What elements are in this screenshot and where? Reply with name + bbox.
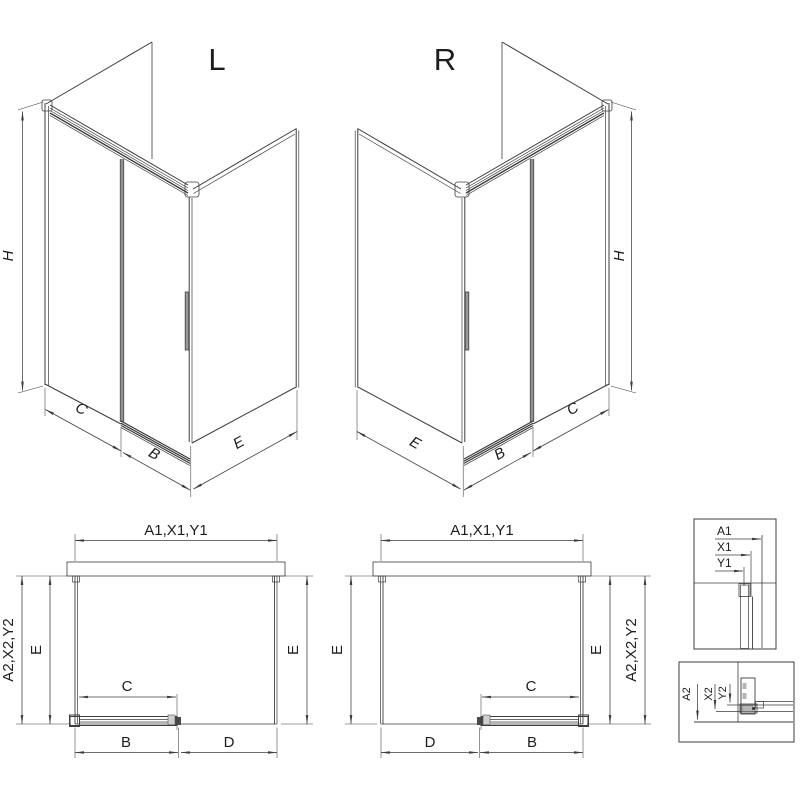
dim-label-b-plan: B — [121, 734, 131, 751]
detail-label-y1: Y1 — [717, 556, 732, 570]
wall-hatch — [67, 562, 285, 576]
variant-label-r: R — [434, 42, 456, 77]
iso-view-right: R H E B C — [355, 42, 636, 497]
door-end-profile — [477, 717, 483, 725]
plan-view-left: A1,X1,Y1 A2,X2,Y2 E E C B D — [0, 522, 313, 758]
dim-label-d-plan: D — [425, 734, 436, 751]
detail-floor-profile: A2 X2 Y2 — [679, 662, 794, 742]
roller-pin — [752, 707, 755, 710]
dim-label-b-left: B — [146, 444, 163, 464]
detail-label-x1: X1 — [717, 540, 732, 554]
dim-label-e-left-side: E — [28, 645, 45, 655]
detail-label-a1: A1 — [717, 524, 732, 538]
dim-label-e-left: E — [230, 433, 248, 453]
dim-label-b-plan: B — [527, 734, 537, 751]
dim-label-d-plan: D — [224, 734, 235, 751]
dim-label-c-plan: C — [526, 678, 537, 695]
drawing-canvas: L H C B E R H E B C A1,X1,Y1 — [0, 0, 800, 800]
dim-label-h-left: H — [0, 250, 17, 261]
floor-guide-section — [740, 678, 764, 714]
detail-label-y2: Y2 — [717, 686, 729, 699]
dim-label-h-right: H — [611, 250, 628, 261]
door-end-profile — [175, 717, 181, 725]
plan-view-right: A1,X1,Y1 E E A2,X2,Y2 C D B — [329, 522, 651, 758]
dim-label-a1-left: A1,X1,Y1 — [144, 522, 207, 539]
detail-label-x2: X2 — [703, 687, 715, 700]
technical-drawing-sheet: L H C B E R H E B C A1,X1,Y1 — [0, 0, 800, 800]
dim-label-a1-right: A1,X1,Y1 — [450, 522, 513, 539]
dim-label-a2-right: A2,X2,Y2 — [623, 618, 640, 681]
wall-hatch — [373, 562, 591, 576]
dim-label-e-right: E — [407, 433, 425, 453]
iso-view-left: L H C B E — [0, 42, 299, 497]
detail-label-a2: A2 — [681, 687, 693, 700]
dim-label-e-right-side: E — [588, 645, 605, 655]
dim-label-a2-left: A2,X2,Y2 — [0, 618, 17, 681]
dim-label-e-left-side: E — [329, 645, 346, 655]
dim-label-c-plan: C — [122, 678, 133, 695]
plan-enclosure — [70, 576, 280, 727]
dim-label-e-right-side: E — [285, 645, 302, 655]
variant-label-l: L — [208, 42, 225, 77]
dim-label-c-right: C — [564, 399, 582, 419]
plan-enclosure — [379, 576, 589, 727]
detail-wall-profile: A1 X1 Y1 — [694, 519, 776, 649]
dim-label-b-right: B — [491, 444, 508, 464]
dim-label-c-left: C — [72, 399, 90, 419]
wall-profile-section — [741, 585, 749, 649]
